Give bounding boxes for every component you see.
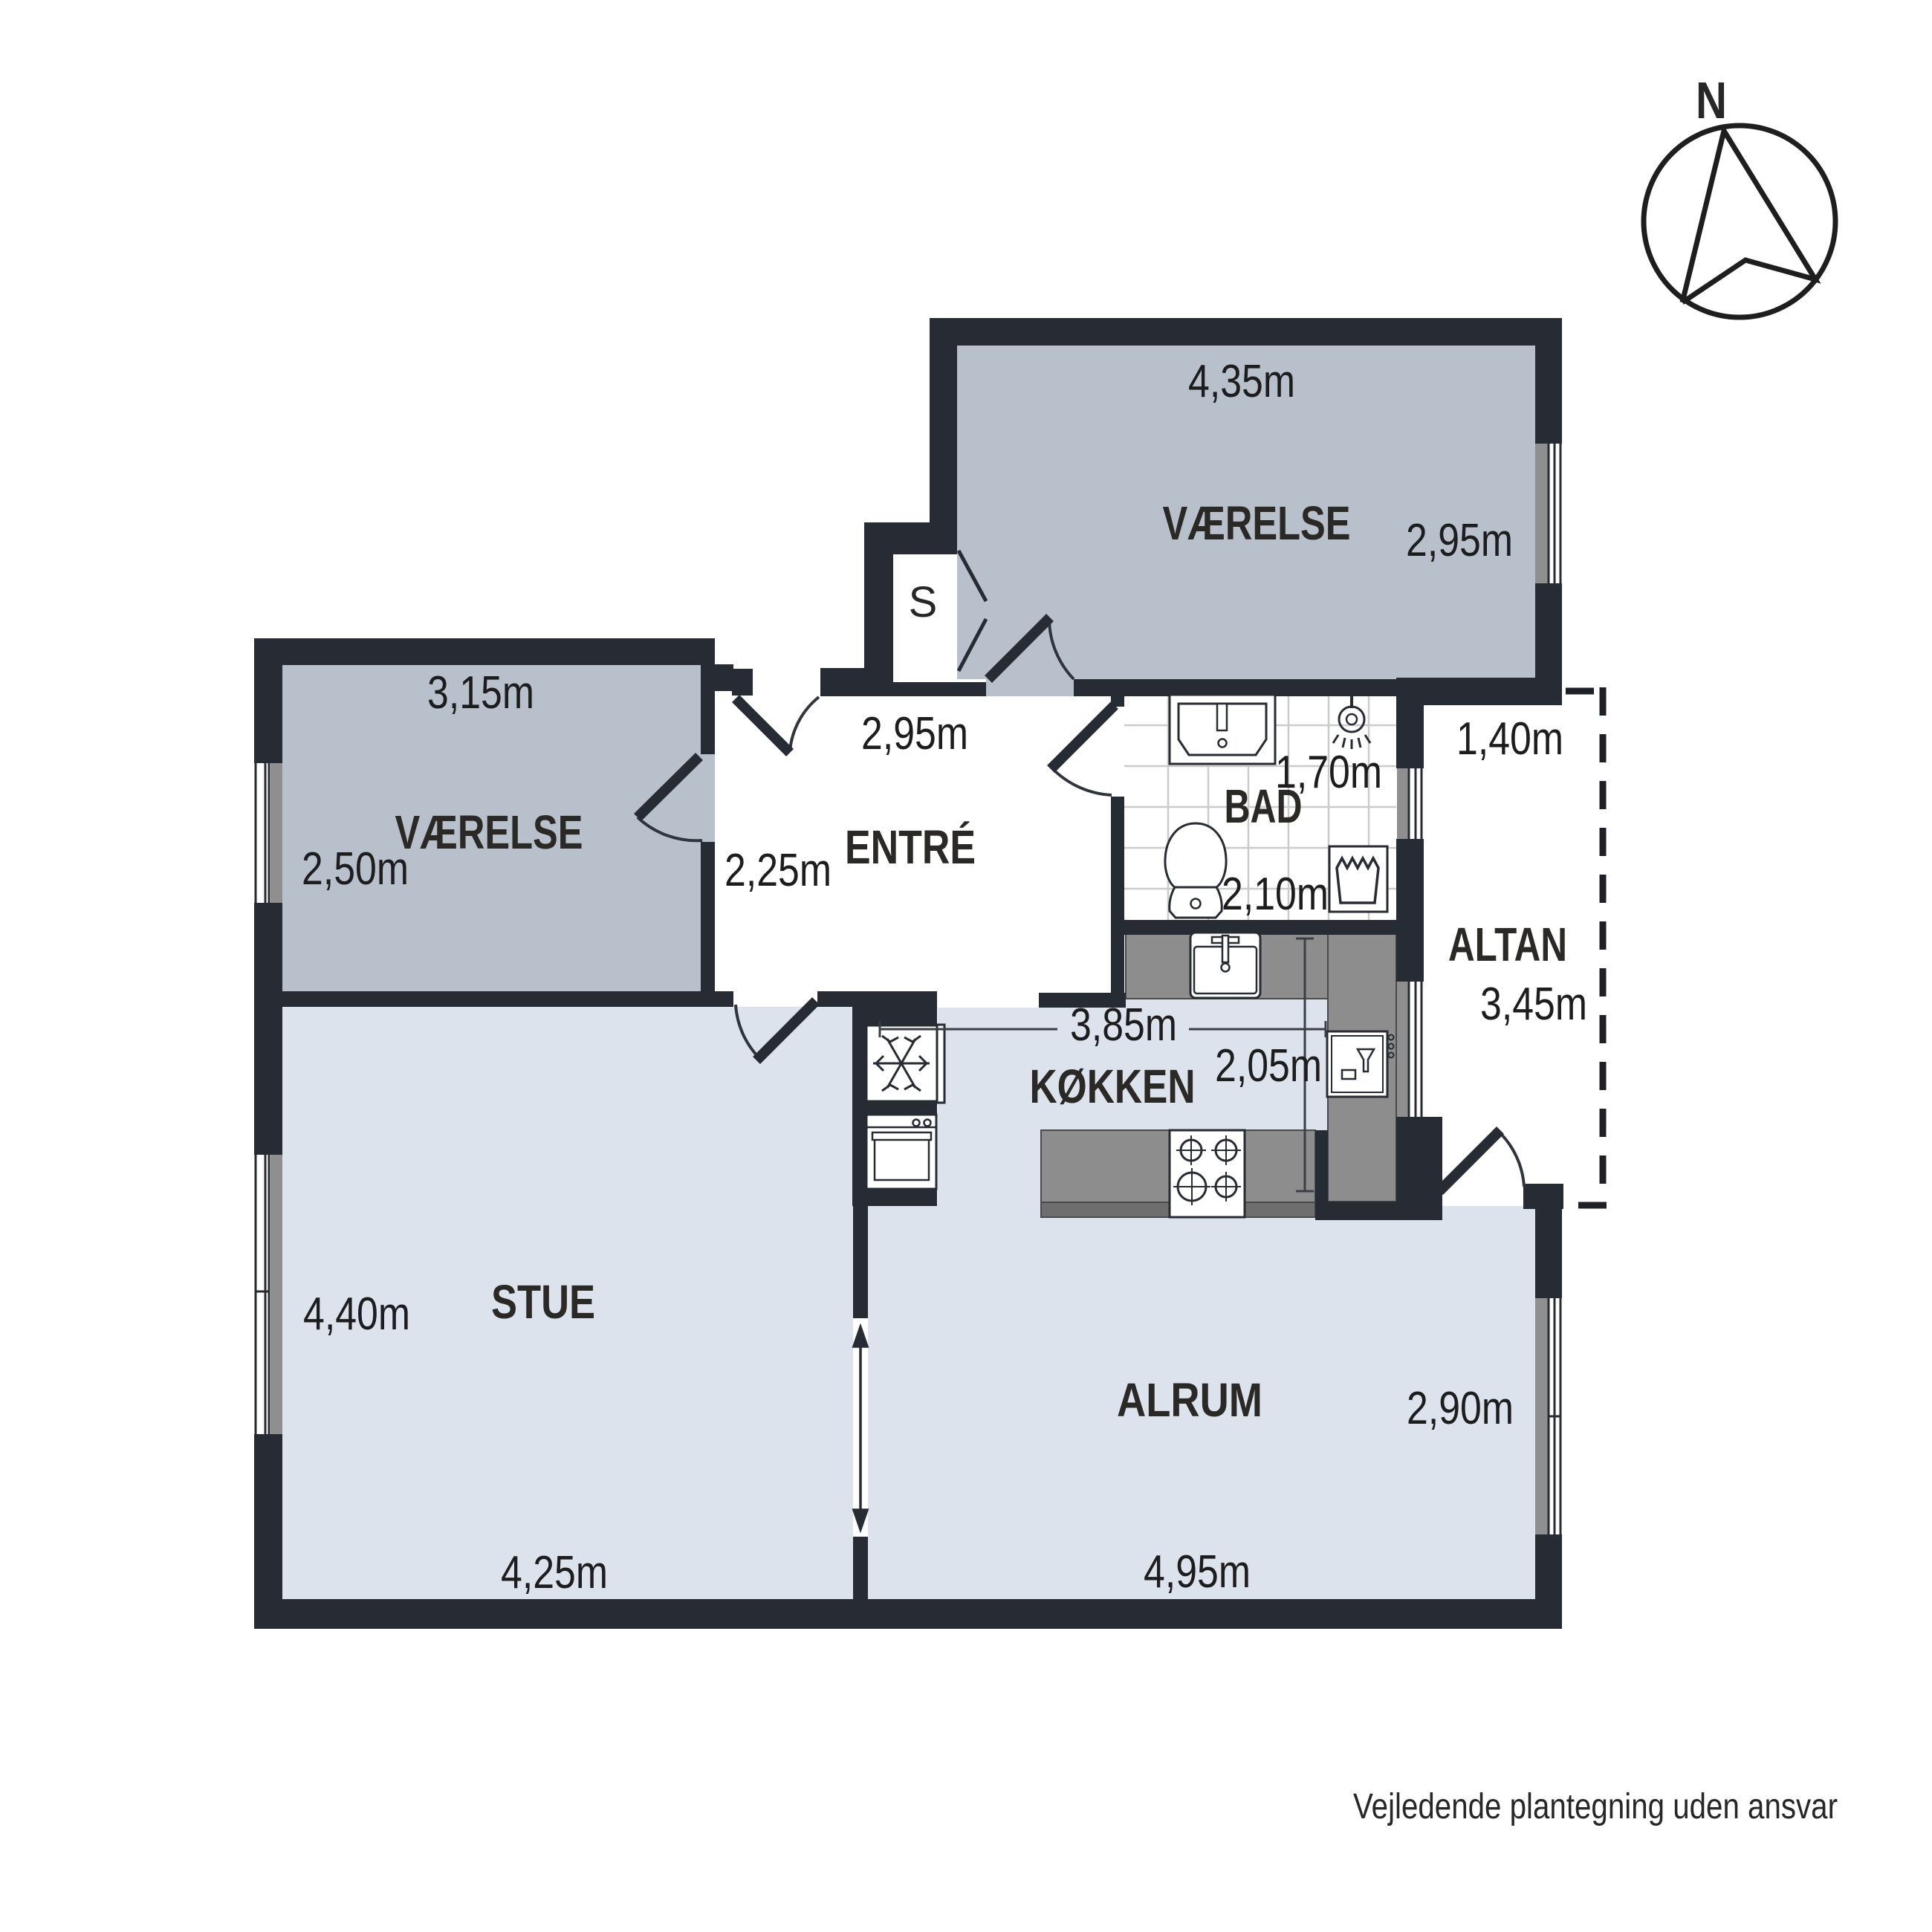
svg-text:VÆRELSE: VÆRELSE (1163, 496, 1351, 550)
svg-text:ALRUM: ALRUM (1117, 1373, 1262, 1427)
svg-text:ALTAN: ALTAN (1448, 918, 1567, 971)
svg-text:3,45m: 3,45m (1480, 979, 1587, 1030)
svg-text:2,90m: 2,90m (1407, 1383, 1514, 1434)
svg-text:STUE: STUE (491, 1275, 595, 1329)
svg-text:Vejledende plantegning uden an: Vejledende plantegning uden ansvar (1353, 1787, 1838, 1826)
svg-text:2,95m: 2,95m (1406, 515, 1513, 566)
svg-text:BAD: BAD (1225, 779, 1303, 833)
svg-text:4,95m: 4,95m (1144, 1546, 1251, 1598)
svg-text:KØKKEN: KØKKEN (1030, 1060, 1196, 1113)
svg-text:N: N (1696, 71, 1727, 129)
svg-text:3,15m: 3,15m (427, 667, 534, 719)
svg-text:4,35m: 4,35m (1188, 356, 1295, 407)
svg-text:2,05m: 2,05m (1215, 1040, 1322, 1092)
svg-text:S: S (909, 578, 938, 626)
svg-text:ENTRÉ: ENTRÉ (845, 820, 976, 874)
svg-text:3,85m: 3,85m (1070, 999, 1177, 1051)
svg-text:4,25m: 4,25m (501, 1547, 608, 1598)
svg-text:VÆRELSE: VÆRELSE (395, 805, 583, 859)
svg-text:2,50m: 2,50m (302, 843, 409, 895)
svg-text:2,95m: 2,95m (861, 708, 968, 759)
svg-text:2,10m: 2,10m (1222, 869, 1329, 920)
svg-text:1,40m: 1,40m (1456, 713, 1563, 765)
svg-text:4,40m: 4,40m (303, 1288, 410, 1340)
svg-text:2,25m: 2,25m (724, 845, 832, 896)
